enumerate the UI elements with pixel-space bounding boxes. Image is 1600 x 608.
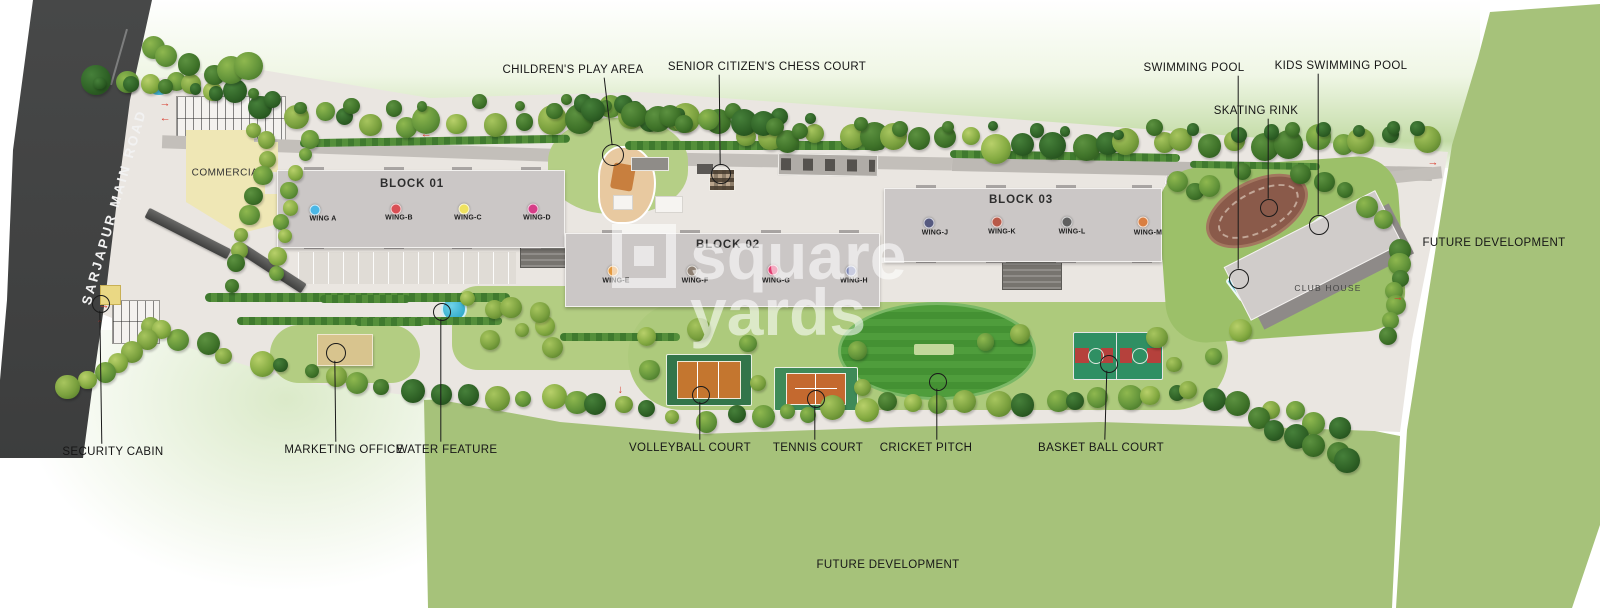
- label-tennis-court: TENNIS COURT: [773, 442, 863, 454]
- wing-a-dot: [310, 205, 321, 216]
- wing-b-label: WING-B: [385, 215, 413, 222]
- volleyball-court: [666, 354, 752, 406]
- future-development-south-label: FUTURE DEVELOPMENT: [816, 559, 959, 571]
- basketball-key-center-b: [1120, 348, 1132, 363]
- tennis-court-surface: [786, 373, 846, 405]
- wing-d-label: WING-D: [523, 215, 551, 222]
- label-security-cabin: SECURITY CABIN: [62, 446, 163, 458]
- wing-l-label: WING-L: [1059, 229, 1086, 236]
- shade-structure: [1002, 258, 1062, 290]
- pergola-long: [778, 153, 878, 177]
- label-basketball-court: BASKET BALL COURT: [1038, 442, 1164, 454]
- basketball-circle-right: [1132, 348, 1148, 364]
- label-water-feature: WATER FEATURE: [397, 444, 498, 456]
- label-senior-chess-court: SENIOR CITIZEN'S CHESS COURT: [668, 61, 866, 73]
- site-master-plan: SARJAPUR MAIN ROAD: [0, 0, 1600, 608]
- wing-j-dot: [924, 218, 935, 229]
- basketball-circle-left: [1088, 348, 1104, 364]
- internal-road: [298, 252, 516, 284]
- tennis-court: [774, 367, 858, 411]
- wing-k-label: WING-K: [988, 229, 1016, 236]
- security-cabin-building: [100, 285, 121, 305]
- pergola-small: [631, 157, 669, 171]
- water-feature: [441, 296, 467, 322]
- marketing-office-building: [317, 334, 373, 366]
- wing-j-label: WING-J: [922, 230, 948, 237]
- watermark-logo-icon: [612, 224, 676, 288]
- wing-m-label: WING-M: [1134, 230, 1162, 237]
- white-slab-b: [655, 196, 683, 213]
- label-skating-rink: SKATING RINK: [1214, 105, 1299, 117]
- label-volleyball-court: VOLLEYBALL COURT: [629, 442, 751, 454]
- commercial-label: COMMERCIAL: [192, 168, 265, 179]
- white-slab-a: [613, 195, 633, 210]
- basketball-key-left: [1075, 348, 1089, 363]
- wing-d-dot: [528, 204, 539, 215]
- watermark: square yards: [612, 224, 906, 343]
- pavilion-dark: [697, 164, 713, 174]
- wing-m-dot: [1138, 217, 1149, 228]
- future-development-east-label: FUTURE DEVELOPMENT: [1422, 237, 1565, 249]
- wing-c-dot: [459, 204, 470, 215]
- ramp: [235, 242, 306, 294]
- volleyball-court-surface: [677, 361, 741, 399]
- wing-a-label: WING A: [310, 216, 337, 223]
- basketball-court: [1073, 332, 1163, 380]
- label-marketing-office: MARKETING OFFICE: [284, 444, 403, 456]
- wing-l-dot: [1062, 217, 1073, 228]
- wing-b-dot: [391, 204, 402, 215]
- wing-c-label: WING-C: [454, 215, 482, 222]
- label-childrens-play-area: CHILDREN'S PLAY AREA: [502, 64, 643, 76]
- label-cricket-pitch: CRICKET PITCH: [880, 442, 973, 454]
- club-house-label: CLUB HOUSE: [1294, 283, 1361, 293]
- block-01-label: BLOCK 01: [380, 178, 444, 190]
- cricket-pitch-strip: [914, 344, 954, 355]
- wing-k-dot: [992, 217, 1003, 228]
- basketball-key-right: [1147, 348, 1161, 363]
- tennis-net-line: [815, 374, 816, 404]
- block-03-label: BLOCK 03: [989, 194, 1053, 206]
- basketball-center-line: [1116, 333, 1117, 379]
- label-kids-swimming-pool: KIDS SWIMMING POOL: [1275, 60, 1408, 72]
- tennis-service-line: [795, 388, 837, 389]
- volleyball-line: [718, 362, 719, 398]
- volleyball-line: [697, 362, 698, 398]
- label-swimming-pool: SWIMMING POOL: [1143, 62, 1244, 74]
- pergola-slats: [781, 158, 875, 172]
